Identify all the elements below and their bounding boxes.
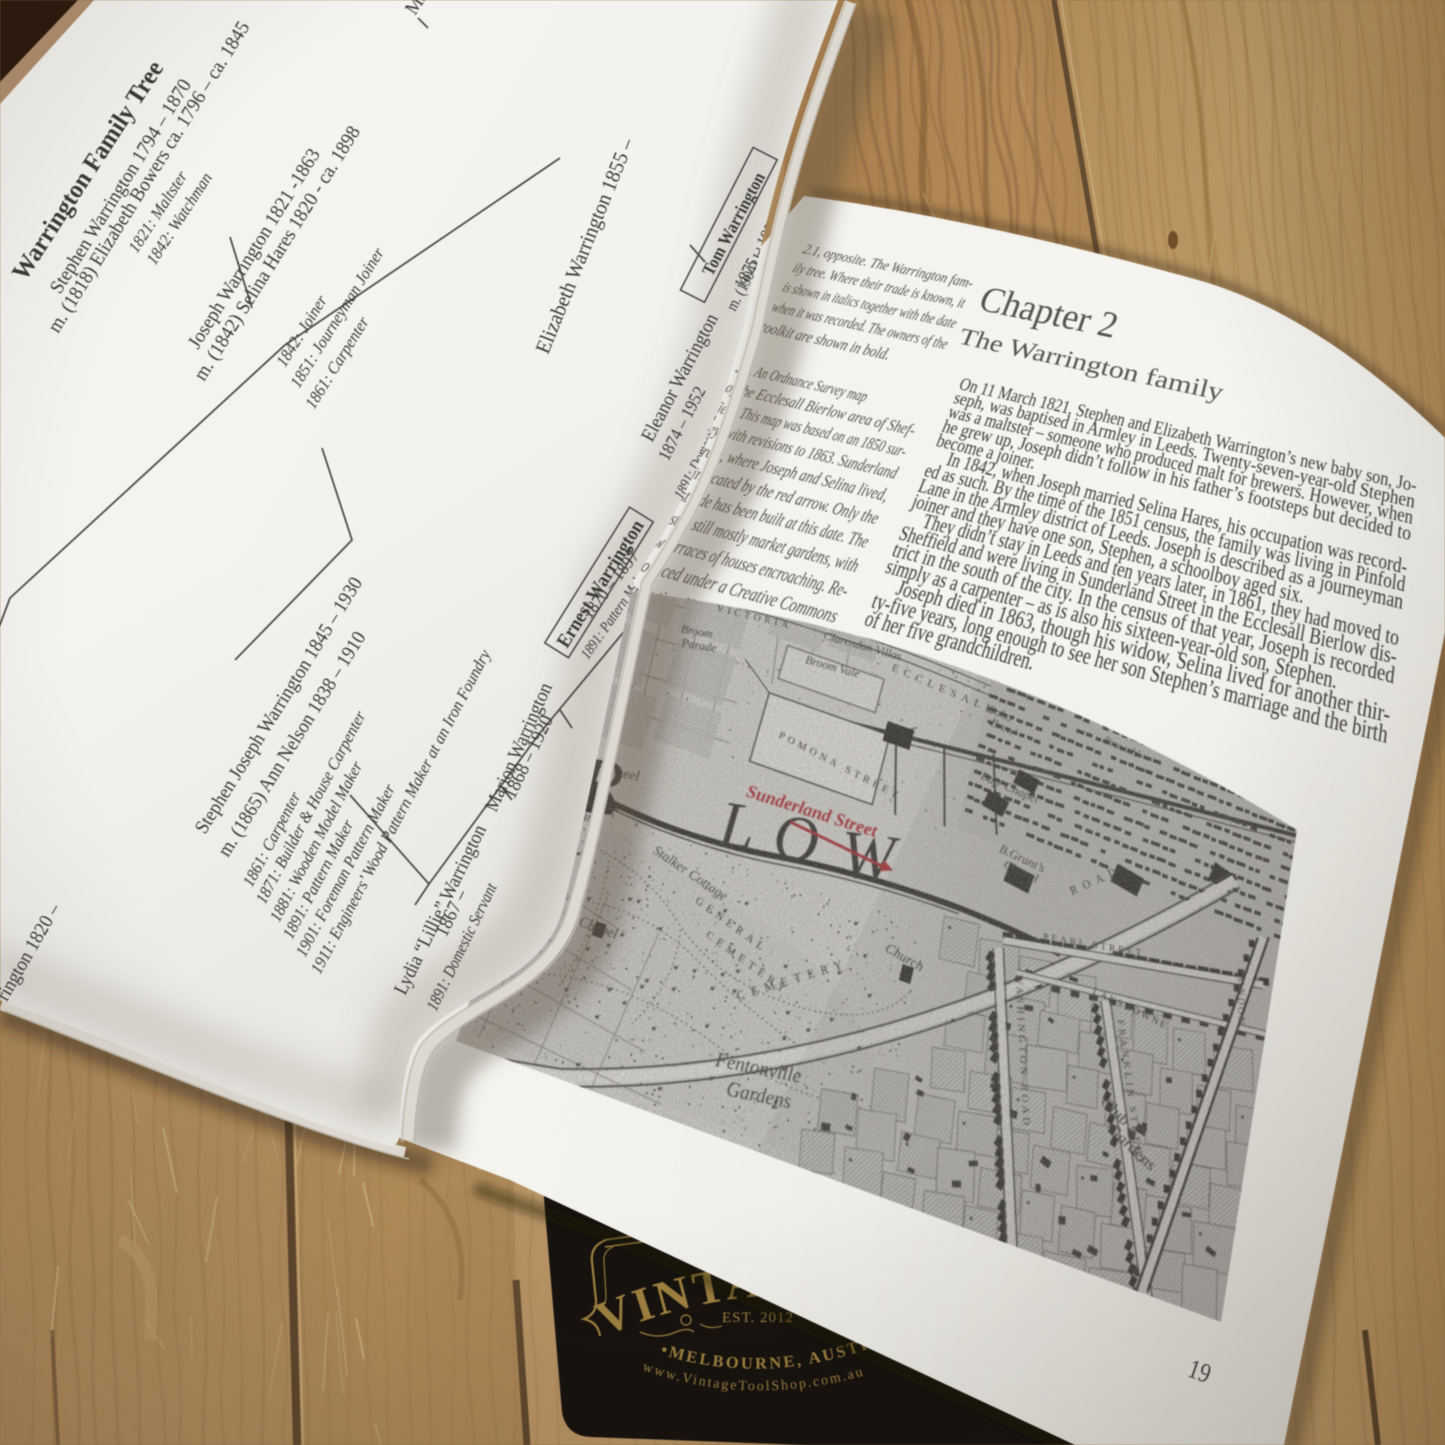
svg-text:Mar: Mar xyxy=(401,0,436,19)
svg-text:Elizabeth Warrington 1855 –: Elizabeth Warrington 1855 – xyxy=(532,135,639,357)
